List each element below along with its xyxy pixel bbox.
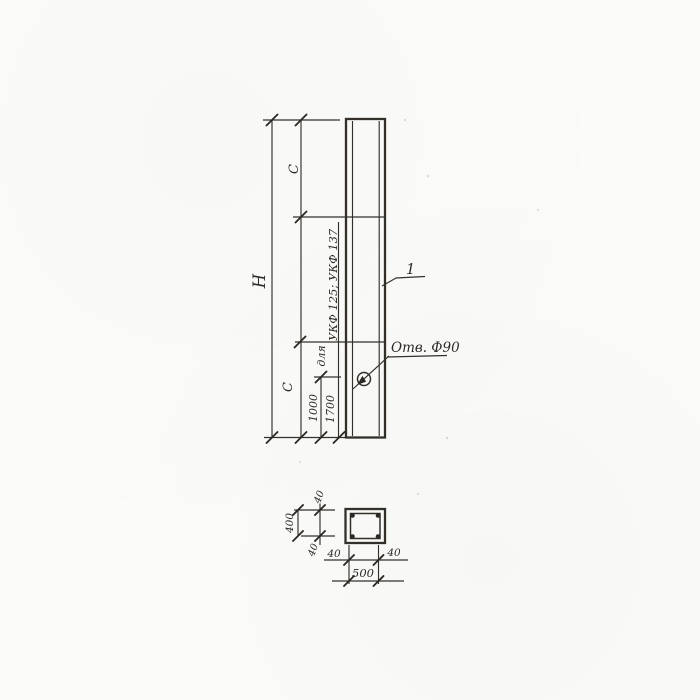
part-number-label: 1 bbox=[406, 262, 415, 278]
overall-height-label: H bbox=[250, 273, 269, 289]
section-height-label: 400 bbox=[284, 513, 296, 534]
hole-offset-1000-label: 1000 bbox=[307, 394, 320, 422]
hole-callout-label: Отв. Ф90 bbox=[391, 340, 460, 356]
part-leader: 1 bbox=[382, 262, 425, 286]
note-prefix-label: для bbox=[315, 345, 328, 366]
hole-callout: Отв. Ф90 bbox=[353, 340, 460, 389]
c-lower-label: C bbox=[281, 382, 296, 392]
section-cover-right-label: 40 bbox=[386, 547, 401, 559]
elevation-view: Отв. Ф90 1 H C C 1000 1700 для УКФ 125; … bbox=[250, 115, 460, 444]
section-cover-left-label: 40 bbox=[326, 548, 341, 560]
section-width-label: 500 bbox=[352, 566, 374, 580]
cross-section-view: 400 40 40 40 40 500 bbox=[284, 489, 408, 586]
technical-drawing: Отв. Ф90 1 H C C 1000 1700 для УКФ 125; … bbox=[0, 0, 700, 700]
note-models-label: УКФ 125; УКФ 137 bbox=[326, 228, 340, 341]
section-stirrup bbox=[351, 514, 381, 539]
c-upper-label: C bbox=[287, 164, 302, 174]
part-number-underline bbox=[396, 277, 425, 279]
section-cover-bottom-label: 40 bbox=[306, 542, 321, 559]
section-rebar-dots bbox=[350, 513, 380, 539]
section-cover-top-label: 40 bbox=[312, 489, 327, 506]
hole-offset-1700-label: 1700 bbox=[324, 395, 337, 423]
drawing-sheet: Отв. Ф90 1 H C C 1000 1700 для УКФ 125; … bbox=[0, 0, 700, 700]
